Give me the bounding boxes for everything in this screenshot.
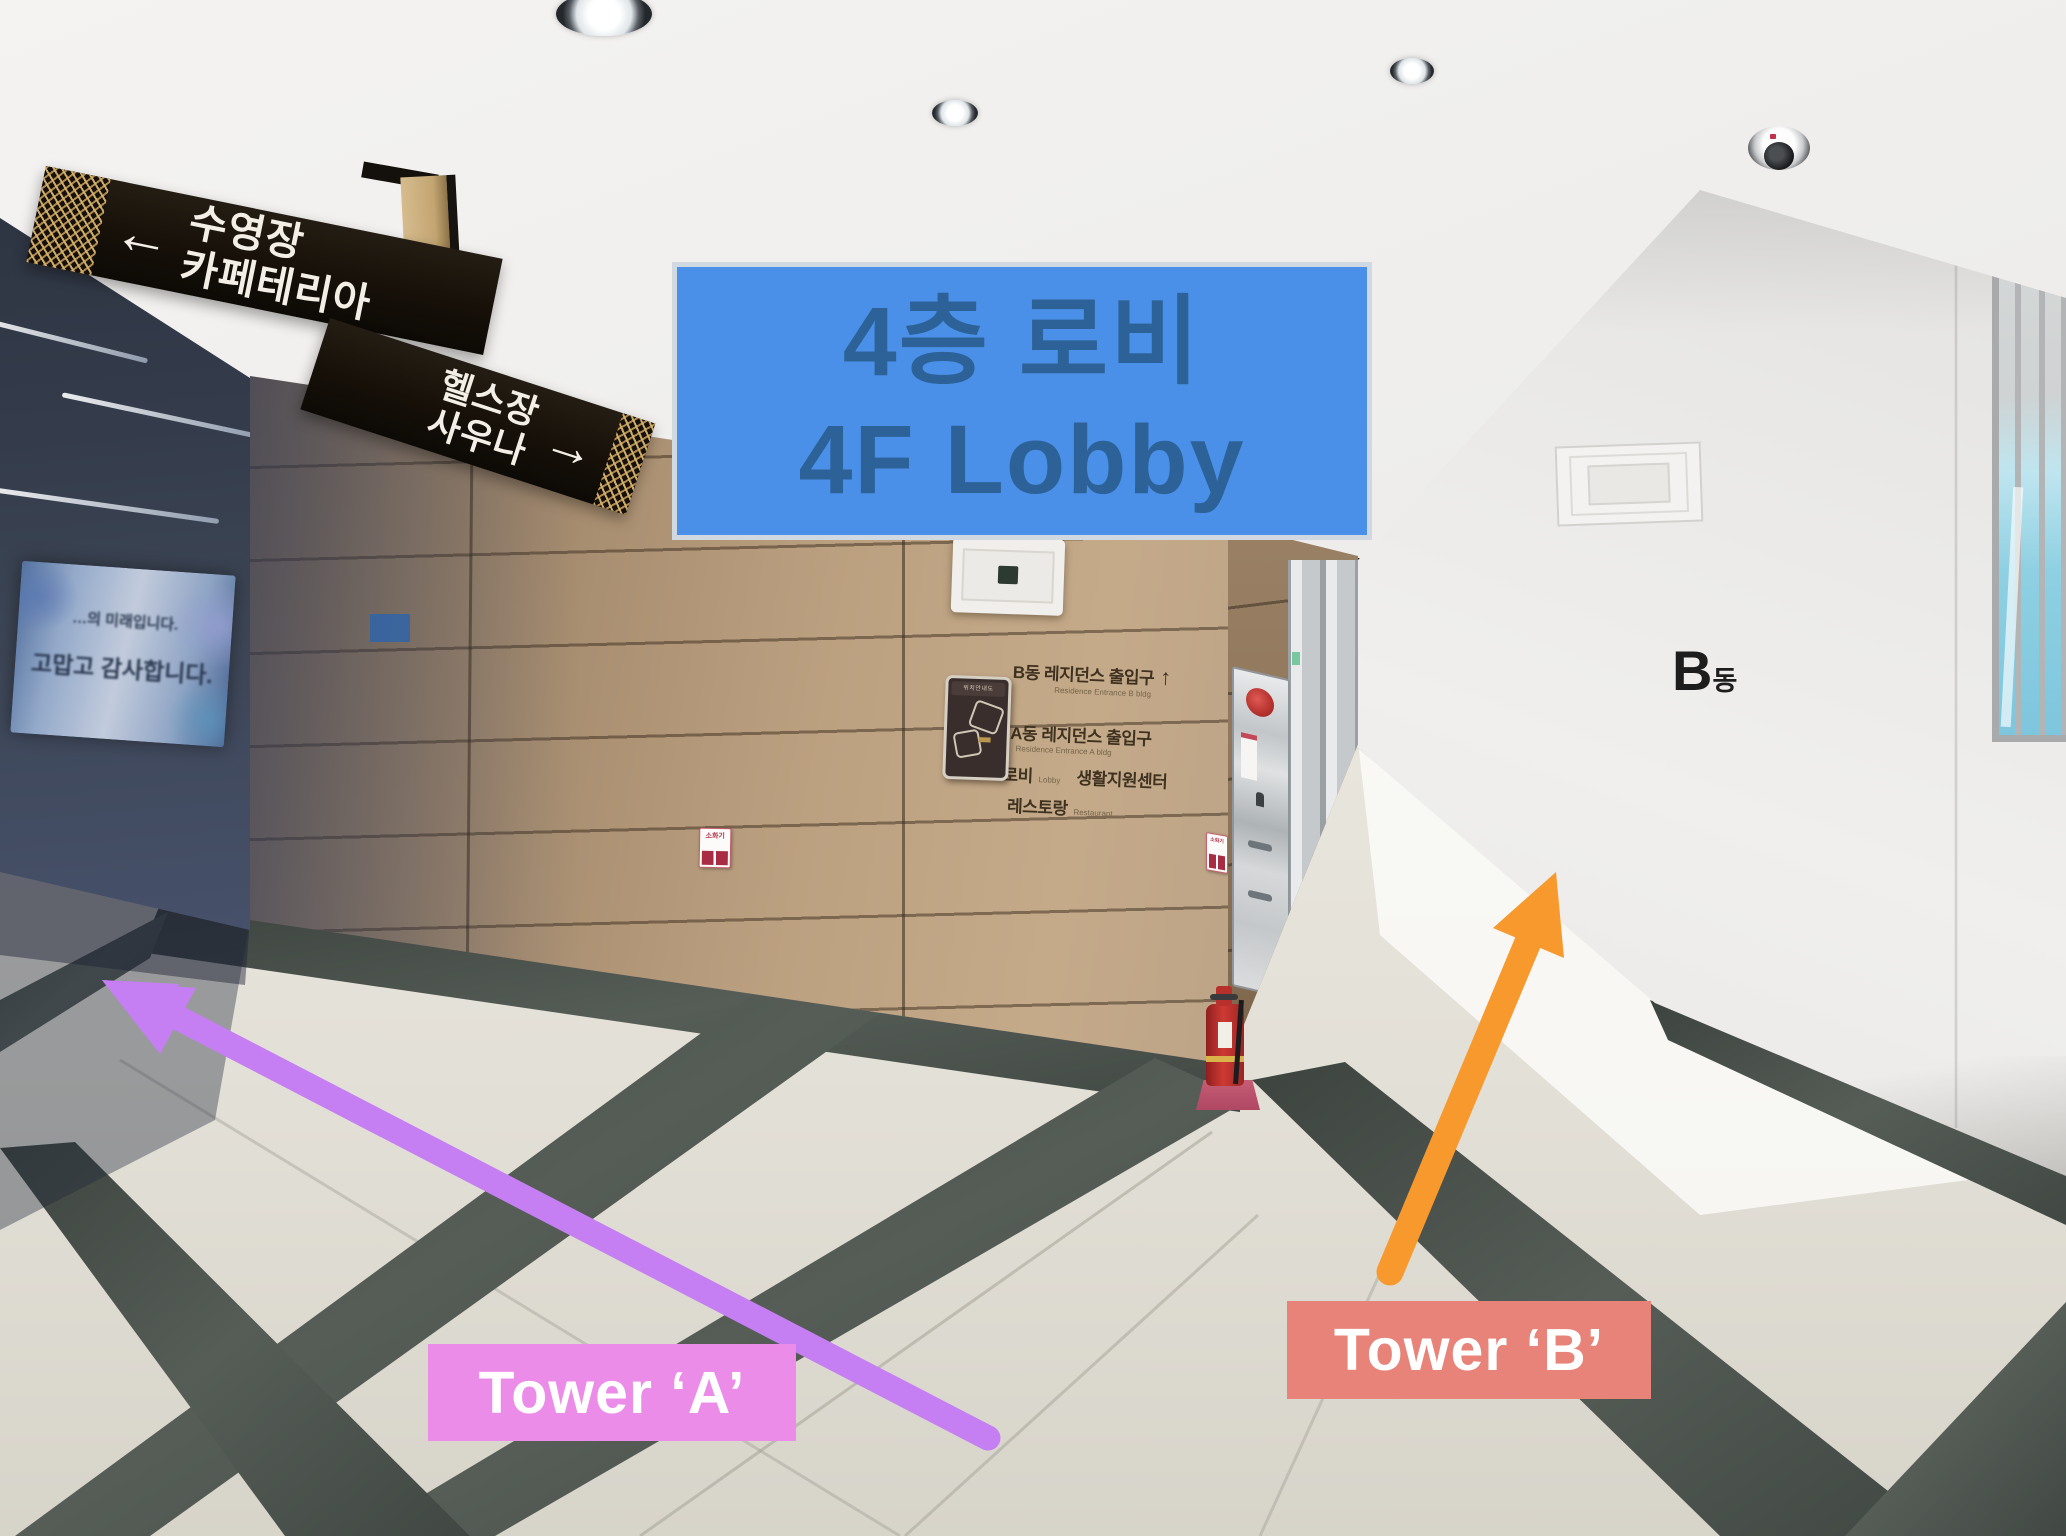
- map-plaque-title: 위치안내도: [951, 681, 1005, 697]
- wall-access-panel: [951, 536, 1066, 616]
- ceiling-light-strip: [0, 318, 148, 364]
- extinguisher-pictogram: [702, 851, 728, 865]
- cabinet-pictogram: [1256, 792, 1264, 808]
- floor-title-overlay: 4층 로비 4F Lobby: [672, 262, 1372, 540]
- banner-line1: …의 미래입니다.: [18, 603, 233, 639]
- door-sticker: [1292, 652, 1300, 665]
- sign-restaurant-en: Restaurant: [1073, 808, 1112, 819]
- fire-extinguisher: [1196, 982, 1260, 1110]
- floor-title-en: 4F Lobby: [798, 401, 1245, 519]
- tower-a-label: Tower ‘A’: [428, 1344, 796, 1441]
- left-arrow-icon: ←: [109, 202, 177, 270]
- recessed-ceiling-light: [1390, 58, 1434, 84]
- location-map-plaque: 위치안내도: [942, 675, 1012, 781]
- recessed-ceiling-light: [932, 100, 978, 126]
- sign-b-entrance: B동 레지던스 출입구: [1012, 658, 1154, 689]
- camera-led: [1770, 134, 1776, 139]
- security-dome-camera: [1748, 120, 1810, 178]
- sign-lobby-en: Lobby: [1038, 775, 1060, 785]
- ceiling-vent: [1555, 441, 1704, 526]
- ceiling-light-strip: [0, 487, 219, 524]
- b-wing-wall-text: B동: [1672, 638, 1737, 703]
- right-arrow-icon: →: [537, 414, 603, 480]
- wall-directional-sign: B동 레지던스 출입구 ↑ Residence Entrance B bldg …: [1007, 658, 1204, 825]
- wall-banner: …의 미래입니다. 고맙고 감사합니다.: [10, 561, 235, 748]
- floor-title-ko: 4층 로비: [843, 283, 1202, 401]
- cabinet-handle: [1248, 890, 1272, 903]
- map-highlight: [979, 737, 991, 742]
- ceiling-light-strip: [62, 392, 259, 438]
- alarm-bell: [1246, 685, 1274, 719]
- sign-support-center: 생활지원센터: [1076, 764, 1168, 793]
- lobby-photo-scene: …의 미래입니다. 고맙고 감사합니다. B동 레지던스 출입구 ↑ Resid…: [0, 0, 2066, 1536]
- panel-lock: [998, 566, 1019, 585]
- cabinet-handle: [1248, 840, 1272, 853]
- blue-wall-patch: [370, 614, 410, 642]
- wall-corner: [1954, 228, 1958, 1128]
- fire-extinguisher-sticker: 소화기: [699, 828, 732, 869]
- tower-b-label: Tower ‘B’: [1287, 1301, 1651, 1399]
- extinguisher-pictogram: [1209, 854, 1225, 871]
- up-arrow-icon: ↑: [1160, 664, 1172, 690]
- cabinet-label: [1241, 732, 1257, 781]
- fire-extinguisher-sticker: 소화기: [1206, 832, 1228, 874]
- banner-line2: 고맙고 감사합니다.: [14, 643, 230, 692]
- sign-restaurant: 레스토랑: [1007, 792, 1069, 820]
